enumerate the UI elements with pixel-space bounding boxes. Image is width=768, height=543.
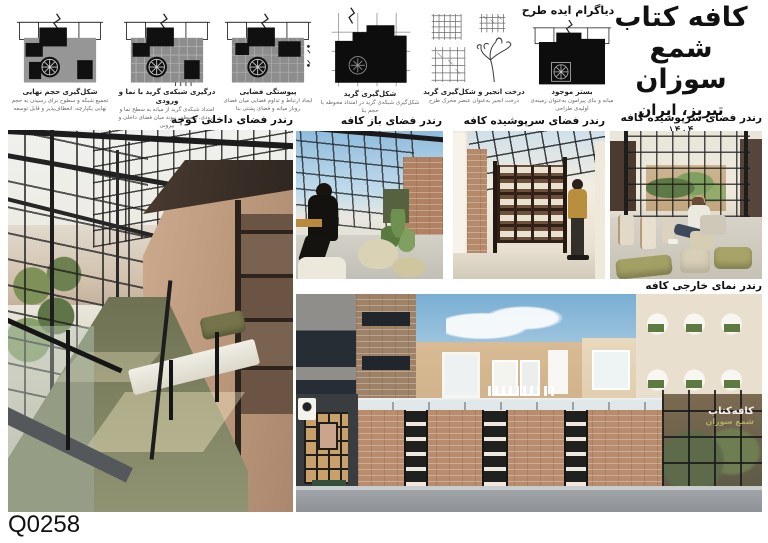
book-slot bbox=[482, 408, 508, 486]
diagram-caption: شکل‌گیری گرید bbox=[320, 90, 420, 99]
label-covered-space-render-b: رندر فضای سرپوشیده کافه bbox=[612, 112, 762, 124]
diagram-caption: شکل‌گیری حجم نهایی bbox=[10, 88, 110, 97]
diagram-grid-formation: شکل‌گیری گرید شکل‌گیری شبکه‌ی گرید در ام… bbox=[320, 6, 420, 115]
bg-window-band bbox=[362, 356, 410, 370]
sheet-id-label: Q0258 bbox=[8, 511, 80, 539]
cafe-signboard bbox=[298, 398, 316, 420]
diagram-fig-tree-grid: درخت انجیر و شکل‌گیری گرید درخت انجیر به… bbox=[422, 10, 526, 106]
diagram-spatial-continuity: پیوستگی فضایی ایجاد ارتباط و تداوم فضایی… bbox=[218, 12, 318, 113]
wall-top-glass bbox=[358, 402, 662, 410]
diagram-grid-facade: درگیری شبکه‌ی گرید با نما و ورودی امتداد… bbox=[114, 12, 220, 130]
plan-diagram-icon bbox=[225, 12, 311, 86]
green-planters bbox=[648, 380, 752, 388]
curb bbox=[296, 486, 762, 490]
wall-edge bbox=[595, 141, 605, 279]
render-alley-interior bbox=[8, 130, 293, 512]
clouds bbox=[446, 302, 566, 342]
bench-leg bbox=[169, 360, 173, 420]
render-exterior-facade: کافه‌کتاب شمع سوزان bbox=[296, 294, 762, 512]
stool bbox=[700, 215, 726, 235]
book-slot bbox=[404, 408, 428, 486]
steel-post bbox=[624, 131, 628, 227]
house-window bbox=[592, 350, 630, 390]
diagram-caption: درگیری شبکه‌ی گرید با نما و ورودی bbox=[114, 88, 220, 106]
steel-post bbox=[493, 161, 497, 261]
steel-grid-frame bbox=[624, 131, 750, 217]
pouf-seat bbox=[298, 257, 346, 279]
floor-cushion bbox=[392, 257, 426, 277]
label-alley-render: رندر فضای داخلی کوچه bbox=[150, 114, 293, 126]
steel-post bbox=[744, 131, 748, 227]
person-shoes bbox=[567, 255, 589, 260]
cube-pouf bbox=[680, 249, 710, 273]
diagram-description: درخت انجیر به‌عنوان عنصر محرک طرح bbox=[422, 98, 526, 106]
brick-pillar bbox=[467, 149, 487, 269]
diagram-description: تجمیع شبکه و سطوح برای رسیدن به حجم نهای… bbox=[10, 98, 110, 113]
diagram-description: شکل‌گیری شبکه‌ی گرید در امتداد محوطه با … bbox=[320, 100, 420, 115]
person-torso bbox=[568, 189, 587, 219]
wood-chair bbox=[640, 217, 656, 249]
facade-sign-line1: کافه‌کتاب bbox=[674, 406, 754, 417]
book-slot bbox=[564, 408, 588, 486]
tree-sketch-icon bbox=[477, 38, 510, 82]
grid-tree-icon bbox=[428, 10, 520, 86]
mass-diagram-icon bbox=[326, 6, 414, 88]
diagram-caption: پیوستگی فضایی bbox=[218, 88, 318, 97]
plan-diagram-icon bbox=[124, 12, 210, 86]
project-title-line2: شمع سوزان bbox=[600, 33, 762, 95]
diagram-description: ایجاد ارتباط و تداوم فضایی میان فضای روب… bbox=[218, 98, 318, 113]
presentation-sheet: شکل‌گیری حجم نهایی تجمیع شبکه و سطوح برا… bbox=[0, 0, 768, 543]
steel-grid-cube bbox=[662, 390, 762, 490]
bench-leg bbox=[215, 332, 219, 402]
facade-signage: کافه‌کتاب شمع سوزان bbox=[674, 406, 754, 426]
shelf-compartments bbox=[239, 214, 293, 414]
entrance-poster bbox=[318, 422, 338, 450]
green-planters bbox=[648, 324, 752, 332]
balcony-railing bbox=[488, 386, 558, 396]
wood-chair bbox=[618, 215, 634, 245]
pouf-olive bbox=[714, 247, 752, 269]
person-hair bbox=[692, 197, 704, 205]
street-asphalt bbox=[296, 488, 762, 512]
facade-sign-line2: شمع سوزان bbox=[674, 417, 754, 426]
project-title-line1: کافه کتاب bbox=[600, 2, 762, 33]
bg-window-band bbox=[362, 312, 410, 326]
diagram-caption: درخت انجیر و شکل‌گیری گرید bbox=[422, 88, 526, 97]
render-open-space bbox=[296, 131, 443, 279]
diagram-final-volume: شکل‌گیری حجم نهایی تجمیع شبکه و سطوح برا… bbox=[10, 12, 110, 113]
railing-post bbox=[66, 330, 70, 450]
label-open-space-render: رندر فضای باز کافه bbox=[312, 115, 442, 127]
table-edge bbox=[296, 219, 322, 227]
plan-diagram-icon bbox=[17, 12, 103, 86]
person-sneaker bbox=[668, 239, 678, 244]
person-legs bbox=[571, 218, 584, 256]
house-window bbox=[442, 352, 480, 398]
steel-post bbox=[563, 157, 567, 267]
render-covered-space-a bbox=[453, 131, 605, 279]
bookshelf bbox=[497, 165, 563, 243]
render-covered-space-b bbox=[610, 131, 762, 279]
label-exterior-render: رندر نمای خارجی کافه bbox=[600, 280, 762, 292]
label-covered-space-render-a: رندر فضای سرپوشیده کافه bbox=[455, 115, 605, 127]
